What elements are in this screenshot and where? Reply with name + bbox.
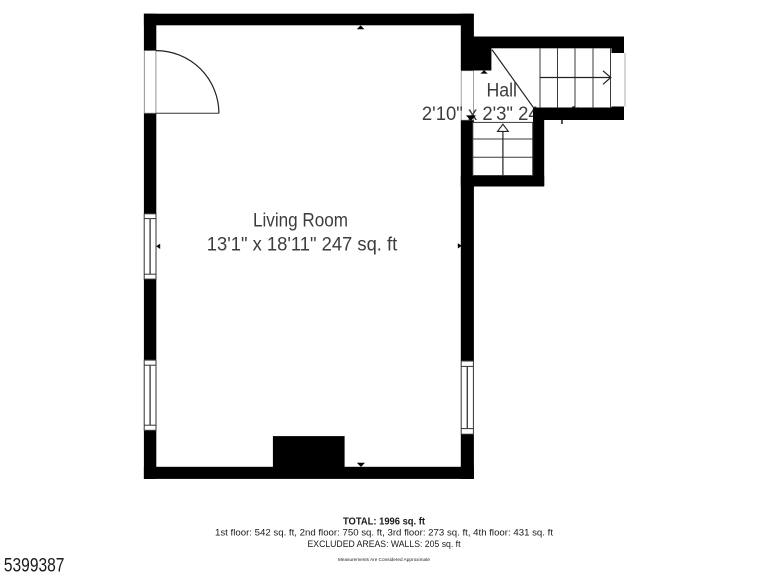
svg-text:Living Room: Living Room	[253, 210, 348, 232]
svg-text:EXCLUDED AREAS: WALLS: 205 sq.: EXCLUDED AREAS: WALLS: 205 sq. ft	[308, 539, 461, 549]
svg-text:1st floor: 542 sq. ft, 2nd flo: 1st floor: 542 sq. ft, 2nd floor: 750 sq…	[215, 528, 553, 538]
svg-text:Measurements Are Considered Ap: Measurements Are Considered Approximate	[338, 557, 430, 563]
svg-text:Hall: Hall	[486, 80, 517, 102]
svg-text:5399387: 5399387	[4, 555, 65, 576]
svg-text:2'10" x 2'3" 24: 2'10" x 2'3" 24	[422, 103, 539, 125]
svg-text:13'1" x 18'11" 247 sq. ft: 13'1" x 18'11" 247 sq. ft	[207, 234, 398, 256]
svg-text:TOTAL: 1996 sq. ft: TOTAL: 1996 sq. ft	[343, 517, 426, 528]
